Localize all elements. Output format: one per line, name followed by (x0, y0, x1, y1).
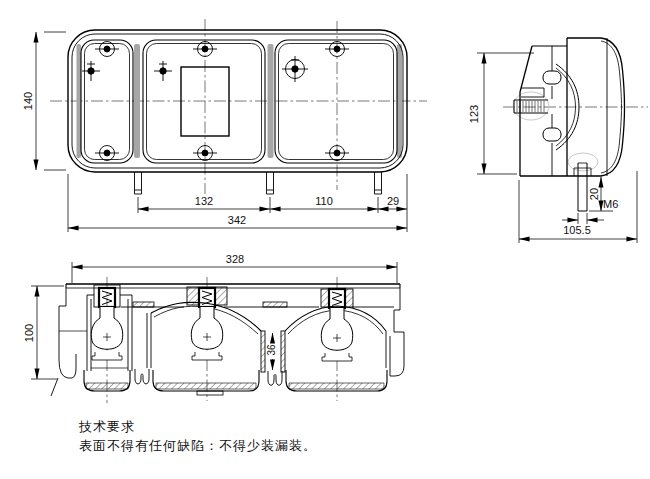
dim-m6: M6 (603, 198, 618, 210)
front-dimensions (36, 32, 407, 232)
dim-29: 29 (387, 195, 399, 207)
dim-110: 110 (315, 195, 333, 207)
side-dimensions (477, 53, 637, 243)
right-end-cap (390, 288, 404, 376)
dim-342: 342 (228, 214, 246, 226)
tech-notes-body: 表面不得有任何缺陷：不得少装漏装。 (79, 438, 317, 453)
section-view: 328 100 36 (23, 253, 404, 403)
side-threaded-stud (514, 100, 548, 113)
lens-compartments (81, 40, 397, 163)
dim-100: 100 (23, 324, 35, 342)
dim-123: 123 (468, 105, 480, 123)
adjustment-markers (82, 56, 308, 82)
dim-36: 36 (266, 344, 277, 356)
side-view: 123 20 M6 105.5 (468, 38, 648, 243)
lens-feet (84, 370, 387, 395)
front-view: 140 132 110 29 342 (22, 19, 427, 232)
dim-140: 140 (22, 92, 34, 110)
dim-328: 328 (226, 253, 244, 265)
left-end-cap (51, 288, 87, 396)
tech-notes: 技术要求 表面不得有任何缺陷：不得少装漏装。 (78, 419, 317, 453)
dim-20: 20 (588, 188, 600, 200)
dim-132: 132 (195, 195, 213, 207)
tech-notes-heading: 技术要求 (78, 419, 135, 434)
tail-lamp-drawing: 140 132 110 29 342 (0, 0, 650, 479)
dim-105-5: 105.5 (563, 224, 591, 236)
mounting-studs (135, 172, 382, 194)
drawing-sheet: 140 132 110 29 342 (0, 0, 650, 479)
